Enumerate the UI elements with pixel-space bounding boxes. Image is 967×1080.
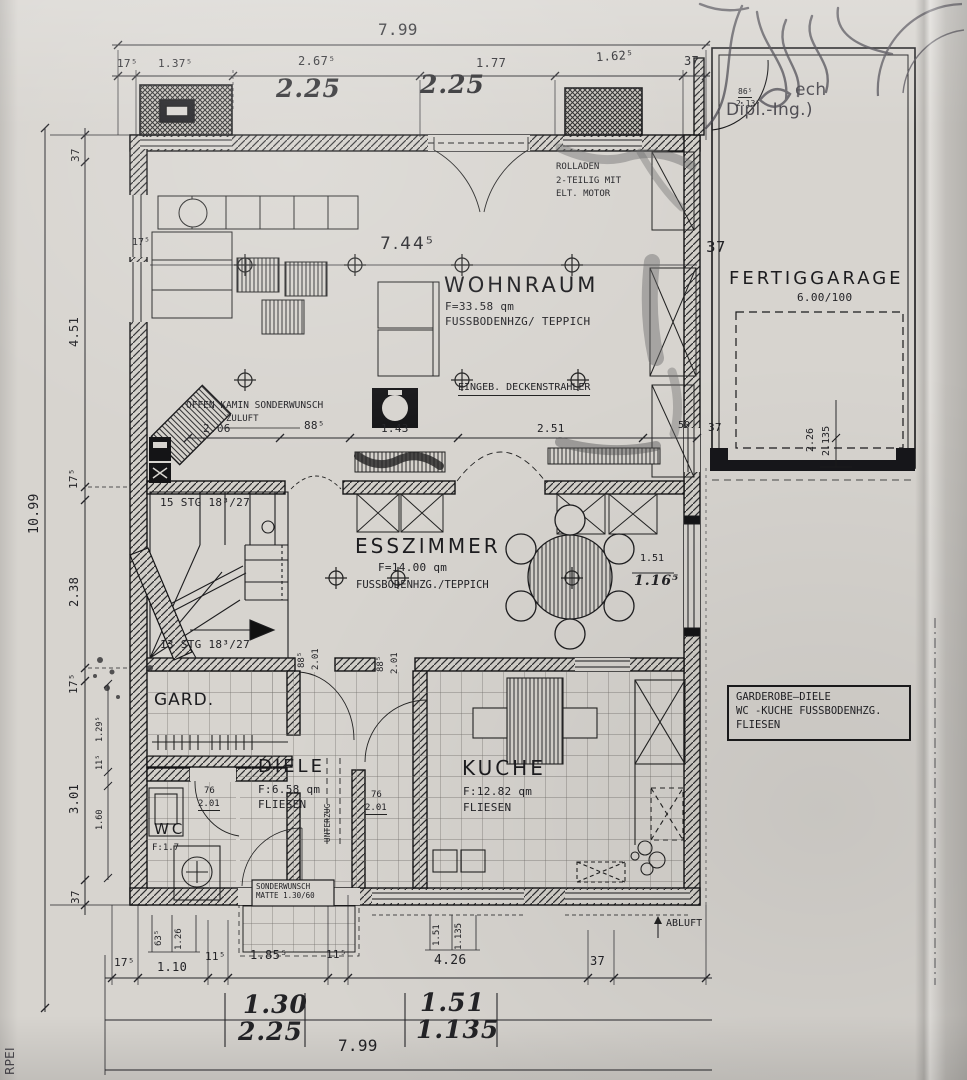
dim-bottom-hw-3: 1.51 xyxy=(420,990,485,1016)
note-abluft: ABLUFT xyxy=(666,919,702,930)
room-wc-area: F:1.7 xyxy=(152,844,179,853)
dim-top-hw-1: 2.25 xyxy=(276,76,341,102)
dim-left-sm-2: 11⁵ xyxy=(96,755,105,770)
dim-bottom-2: 1.10 xyxy=(157,961,187,974)
dim-wc-door-w: 76 xyxy=(204,787,215,796)
room-esszimmer-floor: FUSSBODENHZG./TEPPICH xyxy=(356,580,489,591)
dim-door-b-h: 2.01 xyxy=(391,652,400,674)
dim-bottom-5: 11⁵ xyxy=(326,949,347,961)
dim-wc-door-h: 2.01 xyxy=(198,800,220,811)
dim-bottom-hw-4: 1.135 xyxy=(416,1017,499,1043)
dim-bottom-7: 37 xyxy=(590,955,605,968)
dim-left-2: 4.51 xyxy=(68,317,81,347)
room-diele-title: DIELE xyxy=(258,758,325,777)
dim-bottom-hw-2: 2.25 xyxy=(238,1019,303,1045)
room-gard-title: GARD. xyxy=(154,692,214,710)
dim-top-2: 1.37⁵ xyxy=(158,58,193,70)
margin-scribble: RPEI xyxy=(4,1047,17,1075)
note-deckenstrahler: EINGEB. DECKENSTRAHLER xyxy=(458,383,590,396)
dim-bottom-sv-1: 63⁵ xyxy=(155,930,164,946)
room-wohnraum-area: F=33.58 qm xyxy=(445,301,514,313)
dim-side-door-w: 86⁵ xyxy=(738,88,752,98)
room-garage-title: FERTIGGARAGE xyxy=(729,270,904,289)
dim-left-7: 37 xyxy=(70,890,82,904)
dim-mid-5: 50 xyxy=(678,421,690,432)
note-rolladen-1: ROLLADEN xyxy=(556,163,599,172)
room-diele-area: F:6.58 qm xyxy=(258,784,320,796)
note-box-line-1: GARDEROBE—DIELE xyxy=(736,692,831,703)
room-kueche-title: KUCHE xyxy=(462,758,546,779)
dim-top-5: 1.62⁵ xyxy=(596,49,634,64)
dim-left-sm-3: 1.60 xyxy=(96,810,105,830)
room-wc-title: WC xyxy=(154,822,185,838)
room-kueche-floor: FLIESEN xyxy=(463,802,511,814)
dim-wohnraum-width: 7.44⁵ xyxy=(380,236,435,254)
dim-top-3: 2.67⁵ xyxy=(298,55,336,68)
dim-bottom-sv-3: 1.51 xyxy=(433,924,442,946)
dim-esszimmer-1: 1.51 xyxy=(640,554,664,565)
dim-mid-3: 1.43 xyxy=(381,423,409,435)
dim-bottom-hw-1: 1.30 xyxy=(243,992,308,1018)
note-unterzug: UNTERZUG xyxy=(324,803,332,842)
dim-garage-wall: 37 xyxy=(708,422,722,434)
note-kamin: OFFEN KAMIN SONDERWUNSCH xyxy=(186,401,323,411)
labels-layer: 7.99 17⁵ 1.37⁵ 2.67⁵ 1.77 1.62⁵ 37 2.25 … xyxy=(0,0,967,1080)
dim-bottom-4: 1.85⁵ xyxy=(250,949,288,962)
note-matte-1: SONDERWUNSCH xyxy=(256,883,310,891)
room-wohnraum-title: WOHNRAUM xyxy=(444,274,598,296)
dim-left-6: 3.01 xyxy=(68,784,81,814)
dim-left-3: 17⁵ xyxy=(68,468,80,489)
dim-mid-2: 88⁵ xyxy=(304,420,325,432)
dim-top-6: 37 xyxy=(684,55,699,68)
note-zuluft: ZULUFT xyxy=(226,415,259,424)
dim-door-b-w: 88⁵ xyxy=(377,656,386,672)
dim-top-1: 17⁵ xyxy=(117,58,138,70)
note-rolladen-2: 2-TEILIG MIT xyxy=(556,177,621,186)
dim-mid-1: 2.06 xyxy=(203,423,231,435)
dim-wall-thickness: 17⁵ xyxy=(132,238,150,249)
room-esszimmer-title: ESSZIMMER xyxy=(355,536,501,557)
floor-plan-photo: 7.99 17⁵ 1.37⁵ 2.67⁵ 1.77 1.62⁵ 37 2.25 … xyxy=(0,0,967,1080)
room-esszimmer-area: F=14.00 qm xyxy=(378,562,447,574)
dim-esszimmer-2: 1.16⁵ xyxy=(634,574,679,589)
dim-kueche-door-w: 76 xyxy=(371,791,382,800)
dim-garage-door-2: 2.135 xyxy=(822,426,833,456)
dim-door-a-h: 2.01 xyxy=(312,648,321,670)
dim-mid-wall: 37 xyxy=(706,240,726,256)
dim-bottom-overall: 7.99 xyxy=(338,1038,378,1055)
room-kueche-area: F:12.82 qm xyxy=(463,786,532,798)
dim-mid-4: 2.51 xyxy=(537,423,565,435)
note-rolladen-3: ELT. MOTOR xyxy=(556,190,610,199)
note-stairs-down: 13 STG 18³/27 xyxy=(160,639,250,651)
dim-left-1: 37 xyxy=(70,148,82,162)
dim-left-4: 2.38 xyxy=(68,577,81,607)
dim-left-sm-1: 1.29⁵ xyxy=(96,716,105,742)
dim-bottom-6: 4.26 xyxy=(434,954,467,968)
dim-bottom-3: 11⁵ xyxy=(205,951,226,963)
dim-left-5: 17⁵ xyxy=(68,673,80,694)
dim-top-4: 1.77 xyxy=(476,57,506,70)
room-diele-floor: FLIESEN xyxy=(258,799,306,811)
dim-left-overall: 10.99 xyxy=(28,493,42,534)
dim-bottom-sv-4: 1.135 xyxy=(455,923,464,950)
dim-kueche-door-h: 2.01 xyxy=(365,804,387,815)
note-matte-2: MATTE 1.30/60 xyxy=(256,892,315,900)
note-box-line-3: FLIESEN xyxy=(736,720,780,731)
stamp-text-1: ech xyxy=(795,82,826,100)
note-box-line-2: WC -KUCHE FUSSBODENHZG. xyxy=(736,706,881,717)
note-stairs-up: 15 STG 18³/27 xyxy=(160,497,250,509)
dim-garage-door-1: 2.26 xyxy=(806,428,817,452)
dim-top-hw-2: 2.25 xyxy=(420,72,485,98)
dim-top-overall: 7.99 xyxy=(378,22,418,39)
room-wohnraum-floor: FUSSBODENHZG/ TEPPICH xyxy=(445,316,590,328)
dim-bottom-sv-2: 1.26 xyxy=(175,928,184,950)
room-garage-size: 6.00/100 xyxy=(797,292,852,304)
dim-bottom-1: 17⁵ xyxy=(114,957,135,969)
dim-side-door-h: 2.13⁵ xyxy=(736,100,760,108)
dim-door-a-w: 88⁵ xyxy=(298,652,307,668)
